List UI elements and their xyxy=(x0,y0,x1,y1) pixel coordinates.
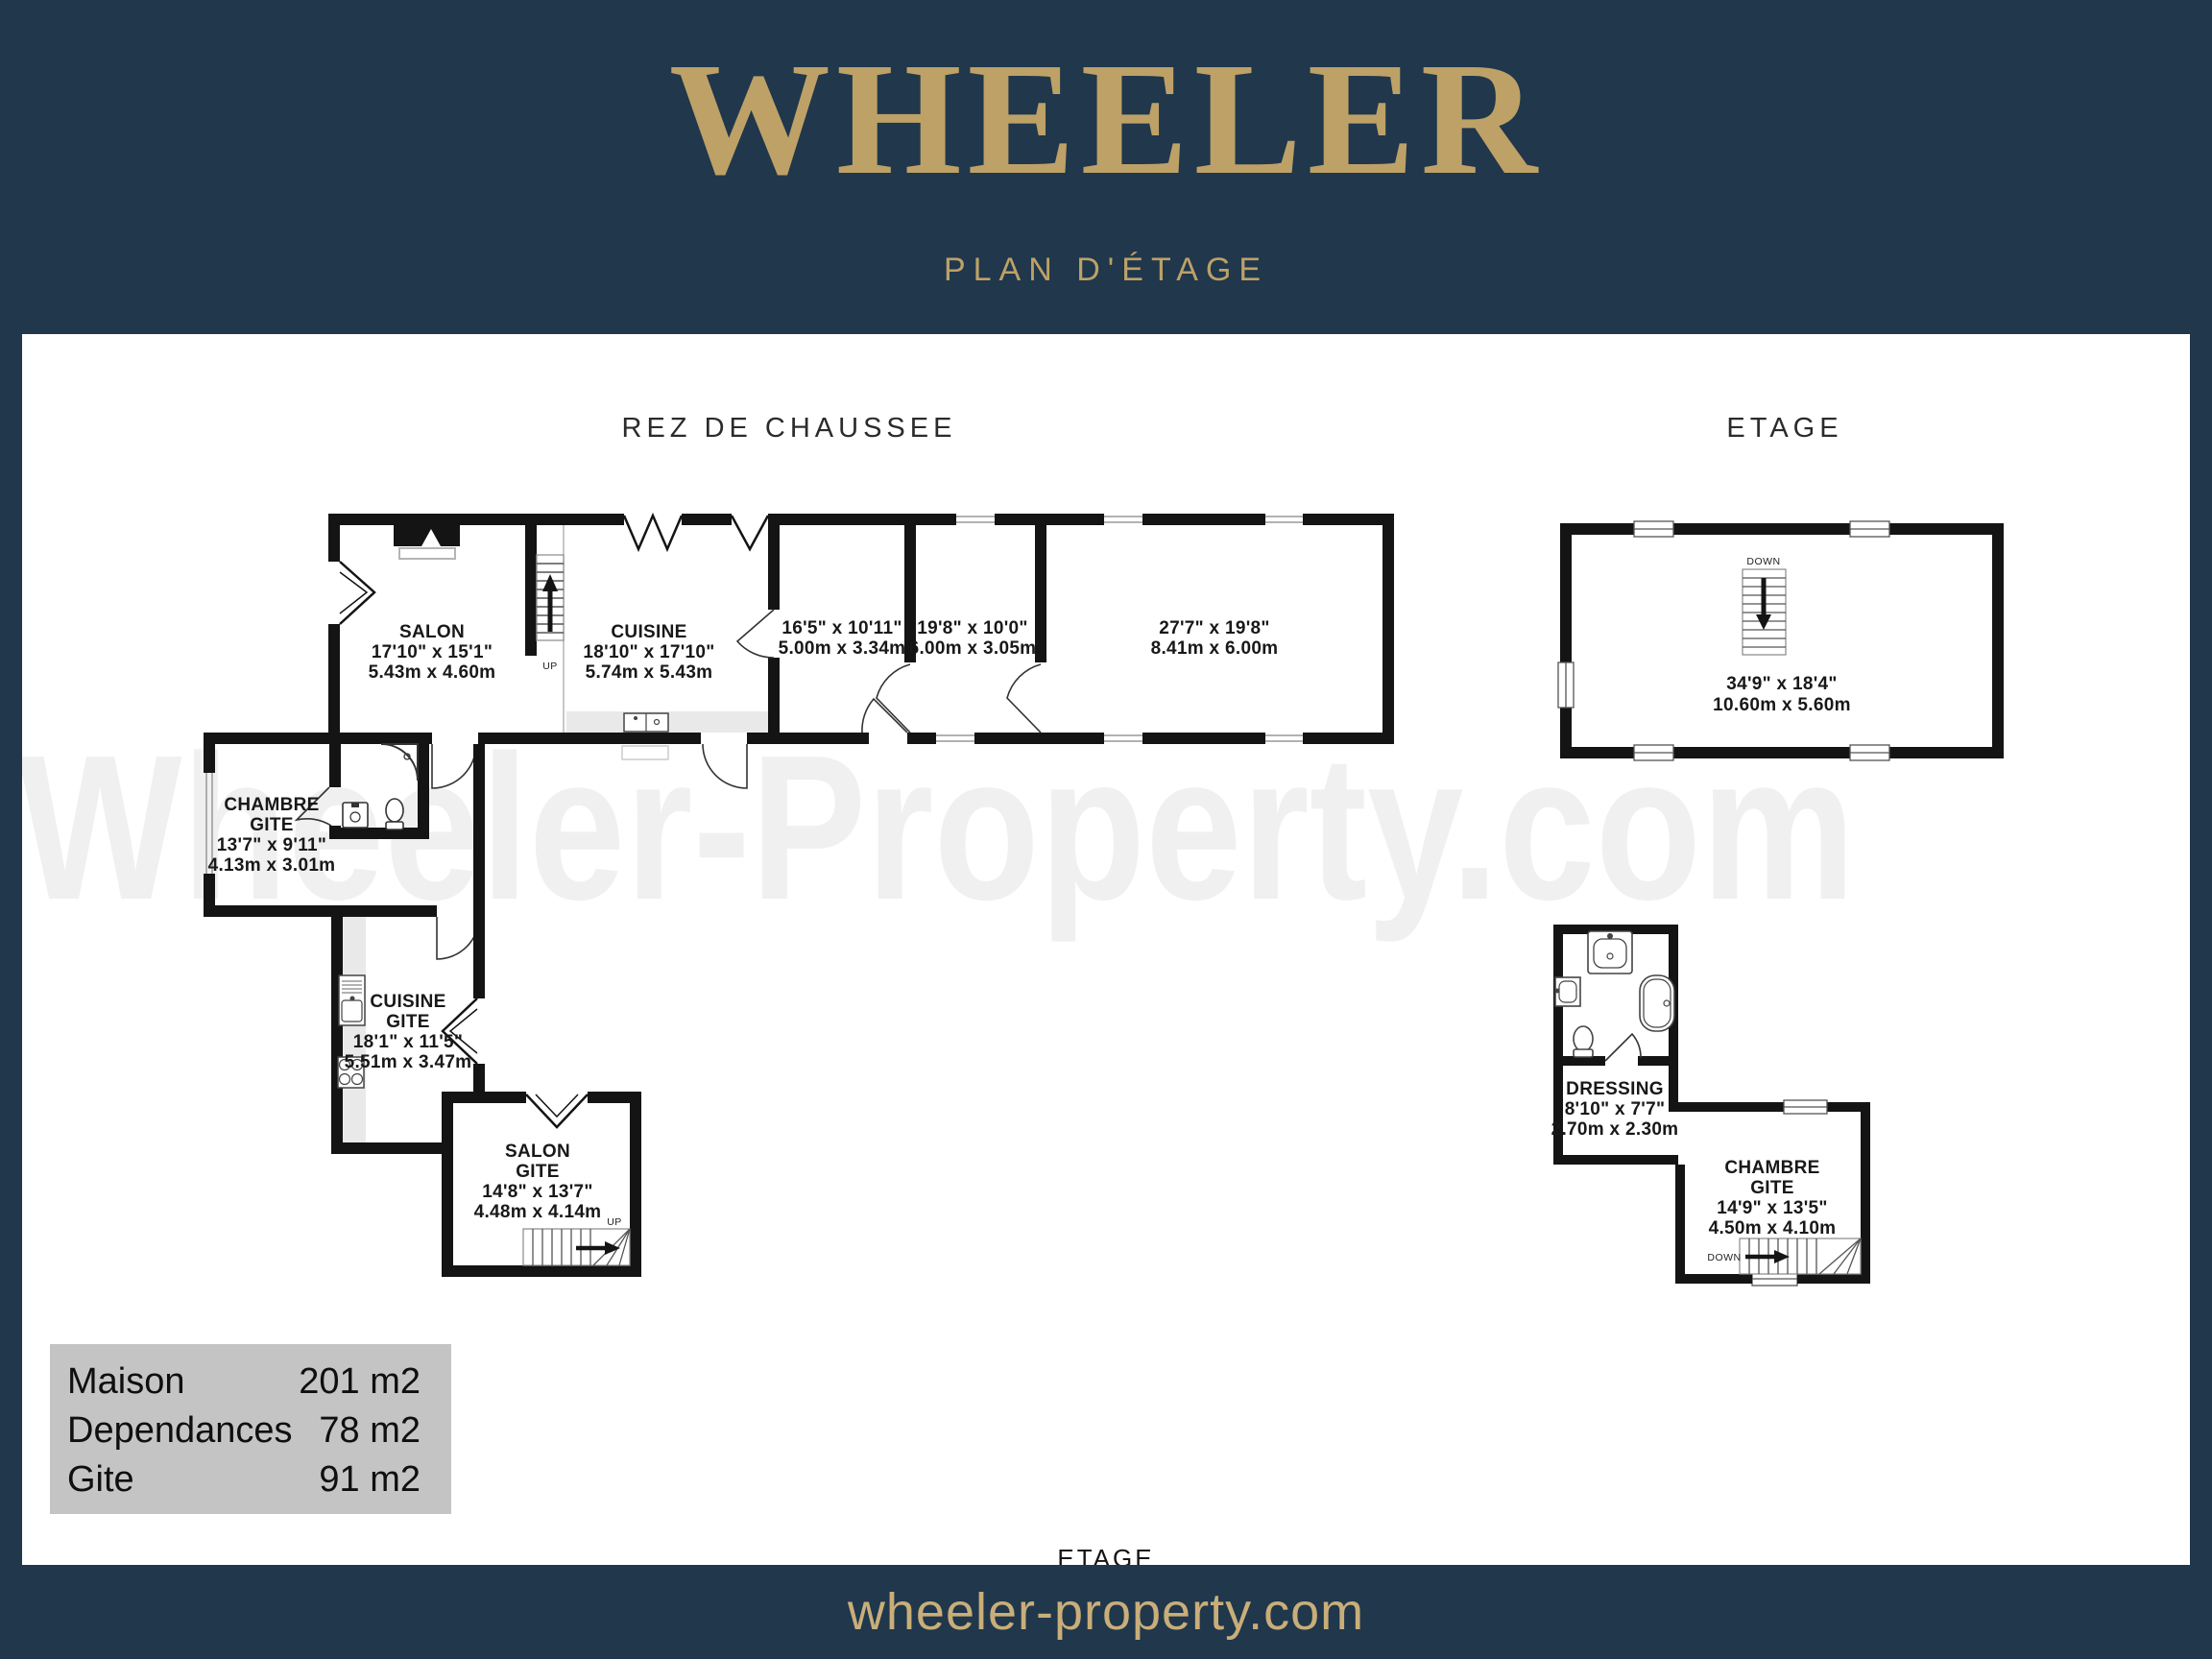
door-symbol xyxy=(536,1094,578,1117)
shower-symbol xyxy=(381,744,418,781)
room-dims: 6.00m x 3.05m xyxy=(909,638,1037,659)
room-label: GITE xyxy=(386,1012,430,1032)
chambre-gite-etage: DOWN CHAMBRE GITE 14'9" x 13'5" 4.50m x … xyxy=(1669,1100,1870,1286)
legend-row: Maison 201 m2 xyxy=(67,1358,421,1407)
stairs-up-label: UP xyxy=(607,1216,622,1228)
door-symbol xyxy=(732,516,768,549)
room-dims: 8.41m x 6.00m xyxy=(1151,638,1279,659)
room-label: SALON xyxy=(505,1142,570,1162)
staircase-down: DOWN xyxy=(1707,1238,1861,1274)
door-swing-symbol xyxy=(1605,1034,1641,1061)
fireplace-symbol xyxy=(394,525,460,559)
double-door-symbol xyxy=(624,516,682,549)
toilet-symbol xyxy=(386,799,403,829)
window-symbol xyxy=(1558,521,1889,760)
room-dims: 16'5" x 10'11" xyxy=(781,618,902,638)
sink-symbol xyxy=(343,803,368,828)
staircase-up: UP xyxy=(523,1216,630,1265)
legend-label: Dependances xyxy=(67,1407,293,1455)
toilet-symbol xyxy=(1574,1026,1593,1057)
room-label: GITE xyxy=(1750,1178,1794,1198)
room-dims: 19'8" x 10'0" xyxy=(917,618,1027,638)
stairs-down-label: DOWN xyxy=(1746,556,1780,567)
website-url: wheeler-property.com xyxy=(848,1582,1364,1642)
header: WHEELER PLAN D'ÉTAGE xyxy=(0,0,2212,334)
main-building-rdc: UP SALON 17'10" x 15'1" 5.43m x 4.60m CU… xyxy=(328,514,1394,788)
room-label: CUISINE xyxy=(370,992,445,1012)
door-swing-symbol xyxy=(437,917,479,959)
brand-logo: WHEELER xyxy=(0,38,2212,200)
ground-floor-label: REZ DE CHAUSSEE xyxy=(501,413,1077,445)
room-label: GITE xyxy=(250,815,294,835)
room-dims: 2.70m x 2.30m xyxy=(1551,1119,1679,1140)
stairs-down-label: DOWN xyxy=(1707,1252,1741,1263)
room-dims: 4.48m x 4.14m xyxy=(474,1202,602,1222)
room-dims: 13'7" x 9'11" xyxy=(217,835,326,855)
legend-value: 78 m2 xyxy=(319,1407,421,1455)
room-dims: 18'10" x 17'10" xyxy=(583,642,714,662)
room-dims: 17'10" x 15'1" xyxy=(372,642,493,662)
room-label: CUISINE xyxy=(611,622,686,642)
legend-value: 201 m2 xyxy=(299,1358,421,1407)
legend-label: Maison xyxy=(67,1358,185,1407)
door-symbol xyxy=(340,572,367,613)
legend-row: Dependances 78 m2 xyxy=(67,1407,421,1455)
small-sink-symbol xyxy=(1555,977,1581,1006)
etage-main: DOWN 34'9" x 18'4" 10.60m x 5.60m xyxy=(1558,521,2004,760)
room-label: SALON xyxy=(399,622,465,642)
room-label: CHAMBRE xyxy=(224,795,319,815)
room-dims: 34'9" x 18'4" xyxy=(1726,674,1837,694)
room-dims: 5.74m x 5.43m xyxy=(586,662,713,683)
room-dims: 5.51m x 3.47m xyxy=(345,1052,472,1072)
stairs-up-label: UP xyxy=(542,661,558,672)
room-dims: 27'7" x 19'8" xyxy=(1159,618,1269,638)
room-dims: 5.43m x 4.60m xyxy=(369,662,496,683)
legend-label: Gite xyxy=(67,1455,134,1504)
room-dims: 14'9" x 13'5" xyxy=(1717,1198,1827,1218)
area-legend: Maison 201 m2 Dependances 78 m2 Gite 91 … xyxy=(50,1344,451,1514)
staircase-down: DOWN xyxy=(1743,556,1786,655)
room-label: GITE xyxy=(516,1162,560,1182)
kitchen-counter-symbol xyxy=(339,917,366,1142)
salon-gite: UP SALON GITE 14'8" x 13'7" 4.48m x 4.14… xyxy=(442,1092,641,1277)
door-symbol xyxy=(526,1094,588,1127)
sink-symbol xyxy=(1588,931,1632,974)
footer: wheeler-property.com xyxy=(0,1565,2212,1659)
legend-value: 91 m2 xyxy=(319,1455,421,1504)
dressing-bath-block: DRESSING 8'10" x 7'7" 2.70m x 2.30m xyxy=(1551,925,1679,1165)
legend-row: Gite 91 m2 xyxy=(67,1455,421,1504)
bathtub-symbol xyxy=(1640,975,1674,1031)
room-dims: 4.50m x 4.10m xyxy=(1709,1218,1837,1238)
cuisine-gite: CUISINE GITE 18'1" x 11'5" 5.51m x 3.47m xyxy=(331,917,485,1154)
room-label: CHAMBRE xyxy=(1724,1158,1819,1178)
door-symbol xyxy=(340,562,374,624)
room-dims: 8'10" x 7'7" xyxy=(1565,1099,1666,1119)
room-dims: 18'1" x 11'5" xyxy=(353,1032,463,1052)
room-label: DRESSING xyxy=(1566,1079,1664,1099)
room-dims: 4.13m x 3.01m xyxy=(208,855,336,876)
staircase-up: UP xyxy=(537,555,564,672)
room-dims: 5.00m x 3.34m xyxy=(779,638,906,659)
room-dims: 10.60m x 5.60m xyxy=(1713,695,1851,715)
page-title: PLAN D'ÉTAGE xyxy=(0,252,2212,289)
floorplan-page: { "header": { "brand": "WHEELER", "subti… xyxy=(0,0,2212,1659)
room-dims: 14'8" x 13'7" xyxy=(482,1182,592,1202)
upper-floor-label: ETAGE xyxy=(1593,413,1977,445)
